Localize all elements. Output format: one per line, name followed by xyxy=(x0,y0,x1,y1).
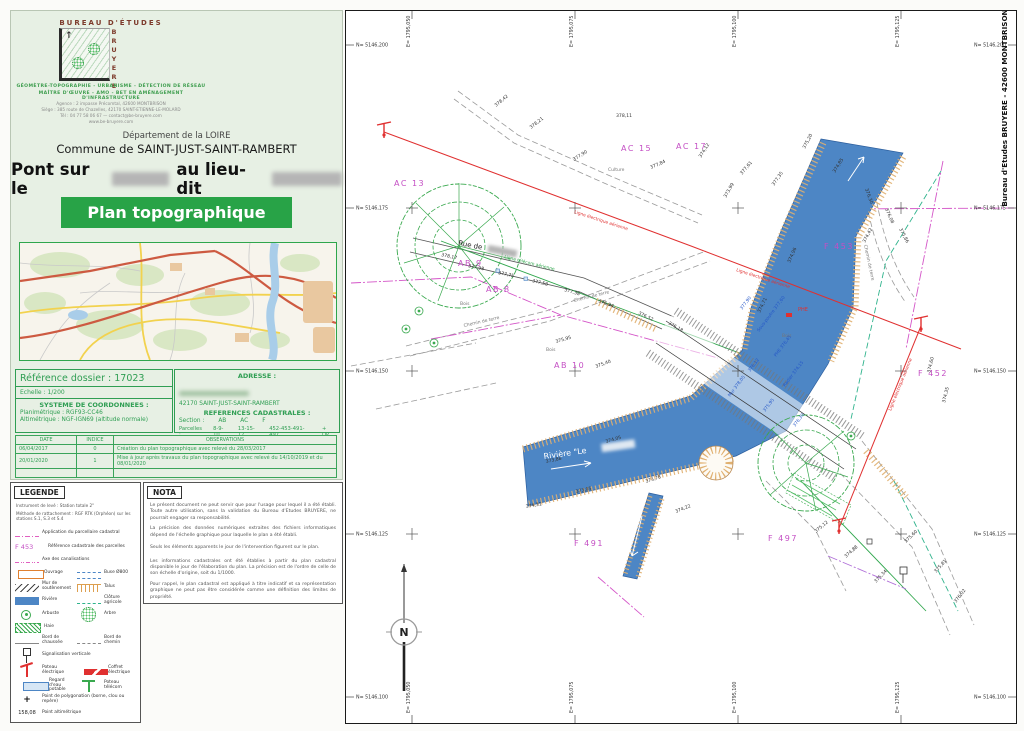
coffret-icon xyxy=(84,669,108,675)
dossier-box: Référence dossier : 17023 Echelle : 1/20… xyxy=(15,369,173,433)
table-cell xyxy=(77,469,114,478)
parcel-label: AB 8 xyxy=(486,285,511,294)
revisions-col-header: INDICE xyxy=(77,436,114,445)
coord-system-title: SYSTEME DE COORDONNEES : xyxy=(16,399,172,409)
legend-row: 158,08Point altimétrique xyxy=(15,707,138,720)
elevation-label: 374,35 xyxy=(941,386,951,403)
blurred-text xyxy=(179,391,249,396)
north-letter: N xyxy=(399,626,408,639)
cloture-icon xyxy=(77,603,101,604)
legend-item: Haie xyxy=(15,622,138,633)
elevation-label: 374,88 xyxy=(843,544,859,559)
legend-row: Bord de chausséeBord de chemin xyxy=(15,634,138,647)
legend-item: Coffret électrique xyxy=(77,666,138,676)
elevation-label: 375,20 xyxy=(801,133,814,150)
map-text: Ligne télécom aérienne xyxy=(504,253,556,272)
elevation-label: 375,95 xyxy=(555,335,572,345)
map-text: Bois xyxy=(460,301,470,307)
elevation-label: 376,02 xyxy=(953,588,968,604)
legend-item-label: Bord de chaussée xyxy=(42,636,77,646)
legend-row: Mur de soutènementTalus xyxy=(15,581,138,594)
project-title-middle: au lieu-dit xyxy=(176,160,264,198)
revisions-header: DATEINDICEOBSERVATIONS xyxy=(16,436,337,445)
planimetric-ref: Planimétrique : RGF93-CC46 xyxy=(16,409,172,416)
legend-item: Clôture agricole xyxy=(77,596,138,606)
haie-icon xyxy=(15,623,41,633)
department-label: Département de la LOIRE xyxy=(11,131,342,141)
legend-item-label: Arbuste xyxy=(42,612,59,617)
legend-row: ArbusteArbre xyxy=(15,607,138,620)
elevation-label: 377,35 xyxy=(771,170,785,187)
elevation-label: 378,11 xyxy=(616,113,632,119)
legend-item: Ouvrage xyxy=(15,568,77,579)
nota-paragraph: La précision des données numériques extr… xyxy=(150,526,336,539)
northing-label: N= 5146,175 xyxy=(356,206,388,212)
project-title: Pont sur le au lieu-dit xyxy=(11,160,342,198)
parcel-label: AC 15 xyxy=(621,144,652,153)
nota-paragraph: Les informations cadastrales ont été éta… xyxy=(150,559,336,578)
elevation-label: 377,61 xyxy=(739,160,754,176)
legend-item-label: Point altimétrique xyxy=(42,711,81,716)
company-logo: ↑ xyxy=(59,28,110,81)
tagline-2: MAÎTRE D'ŒUVRE - AMO - BET EN AMÉNAGEMEN… xyxy=(11,91,211,101)
easting-label: E= 1795,050 xyxy=(406,682,412,713)
legend-row: Poteau électriqueCoffret électrique xyxy=(15,663,138,679)
address-title: ADRESSE : xyxy=(175,370,339,380)
bordchaussee-icon xyxy=(15,643,39,644)
legend-item-label: Ouvrage xyxy=(44,571,63,576)
legend-panel: LEGENDE Instrument de levé : Station tot… xyxy=(10,482,141,723)
nota-paragraphs: Le présent document ne peut servir que p… xyxy=(150,503,336,605)
legend-items: Application du parcellaire cadastralF 45… xyxy=(15,527,138,720)
altimetric-ref: Altimétrique : NGF-IGN69 (altitude norma… xyxy=(16,416,172,423)
legend-item-label: Regard d'eau potable xyxy=(49,679,77,694)
northing-label: N= 5146,150 xyxy=(356,369,388,375)
parcelref-icon: F 453 xyxy=(15,542,45,553)
elevation-label: 376,08 xyxy=(883,207,895,224)
blurred-text xyxy=(272,172,343,186)
elevation-label: 373,99 xyxy=(723,182,736,199)
brand-vertical-label: BRUYERE xyxy=(110,28,118,82)
buse-icon xyxy=(77,572,101,579)
ouvrage-icon xyxy=(18,570,44,579)
plan-svg: E= 1795,050E= 1795,050E= 1795,075E= 1795… xyxy=(346,11,1016,723)
company-top-label: Bureau d'Études xyxy=(11,19,211,27)
legend-row: RivièreClôture agricole xyxy=(15,594,138,607)
elevation-label: 377,38 xyxy=(563,287,580,297)
poteautel-icon xyxy=(77,679,101,694)
address-line-4: www.be-bruyere.com xyxy=(11,119,211,125)
axe-icon xyxy=(15,562,39,563)
revisions-body: 06/04/20170Création du plan topographiqu… xyxy=(16,445,337,478)
easting-label: E= 1795,075 xyxy=(569,682,575,713)
commune-label: Commune de SAINT-JUST-SAINT-RAMBERT xyxy=(11,142,342,156)
elevation-label: 375,12 xyxy=(813,520,829,535)
table-cell: Mise à jour après travaux du plan topogr… xyxy=(114,454,337,469)
address-city: 42170 SAINT-JUST-SAINT-RAMBERT xyxy=(175,400,339,407)
legend-item-label: Arbre xyxy=(104,612,116,617)
blurred-text xyxy=(487,245,517,258)
legend-row: OuvrageBuse Ø800 xyxy=(15,567,138,580)
map-river xyxy=(270,243,275,360)
legend-item-label: Référence cadastrale des parcelles xyxy=(48,545,125,550)
map-lake xyxy=(68,310,88,320)
easting-label: E= 1795,075 xyxy=(569,16,575,47)
elevation-label: 375,40 xyxy=(595,359,612,370)
address-line-3: Tél : 04 77 58 06 67 — contact@be-bruyer… xyxy=(11,113,211,119)
northing-label: N= 5146,125 xyxy=(974,532,1006,538)
parcel-label: AC 13 xyxy=(394,179,425,188)
elevation-label: 376,94 xyxy=(597,298,614,309)
northing-label: N= 5146,100 xyxy=(356,695,388,701)
cadastral-lines xyxy=(351,161,1014,617)
tree-icon xyxy=(72,57,84,69)
plan-frame: E= 1795,050E= 1795,050E= 1795,075E= 1795… xyxy=(345,10,1017,724)
elevation-label: 377,58 xyxy=(532,278,549,288)
elevation-label: 377,90 xyxy=(572,149,589,163)
table-cell: 06/04/2017 xyxy=(16,445,77,454)
map-text: Chemin de terre xyxy=(862,244,876,281)
elevation-label: 375,86 xyxy=(897,227,910,244)
legend-item-label: Mur de soutènement xyxy=(42,582,77,592)
location-map-svg xyxy=(20,243,336,360)
legend-item: Buse Ø800 xyxy=(77,569,138,579)
blurred-text xyxy=(112,172,170,186)
legend-title: LEGENDE xyxy=(14,486,65,499)
location-map xyxy=(19,242,337,361)
easting-label: E= 1795,050 xyxy=(406,16,412,47)
elevation-label: 374,22 xyxy=(675,503,692,515)
legend-row: Application du parcellaire cadastral xyxy=(15,527,138,540)
legend-item-label: Buse Ø800 xyxy=(104,571,128,576)
plan-sheet: { "colors":{"banner_green":"#28a347","ta… xyxy=(0,0,1024,731)
legend-method: Méthode de rattachement : RGF RTK (Orphé… xyxy=(16,511,136,522)
legend-item: Bord de chemin xyxy=(77,636,138,646)
legend-row: Axe des canalisations xyxy=(15,554,138,567)
parcel-label: F 453 xyxy=(824,242,854,251)
parcel-label: AB 10 xyxy=(554,361,585,370)
legend-item: 158,08Point altimétrique xyxy=(15,708,138,719)
poteauelec-icon xyxy=(15,663,39,679)
table-cell: Création du plan topographique avec rele… xyxy=(114,445,337,454)
legend-item-label: Talus xyxy=(104,585,115,590)
table-cell: 0 xyxy=(77,445,114,454)
easting-label: E= 1795,125 xyxy=(895,682,901,713)
polygo-icon: + xyxy=(15,695,39,706)
northing-label: N= 5146,100 xyxy=(974,695,1006,701)
legend-item: F 453Référence cadastrale des parcelles xyxy=(15,542,138,553)
section-value: AB xyxy=(218,418,226,424)
map-text: Ligne électrique aérienne xyxy=(886,357,914,412)
map-text: Bois xyxy=(546,347,556,353)
legend-item-label: Haie xyxy=(44,625,54,630)
tagline-1: GÉOMÈTRE-TOPOGRAPHIE - URBANISME - DÉTEC… xyxy=(11,84,211,89)
elevation-label: 375,81 xyxy=(933,558,948,574)
revisions-col-header: OBSERVATIONS xyxy=(114,436,337,445)
regard-icon xyxy=(23,682,49,691)
legend-item-label: Coffret électrique xyxy=(108,666,138,676)
revisions-col-header: DATE xyxy=(16,436,77,445)
table-cell xyxy=(114,469,337,478)
nota-panel: NOTA Le présent document ne peut servir … xyxy=(143,482,343,604)
title-block-card: Bureau d'Études ↑ BRUYERE GÉOMÈTRE-TOPOG… xyxy=(10,10,343,480)
riviere-icon xyxy=(15,597,39,605)
parcel-label: F 491 xyxy=(574,539,604,548)
legend-item-label: Signalisation verticale xyxy=(42,653,91,658)
project-title-prefix: Pont sur le xyxy=(11,160,105,198)
legend-item: Axe des canalisations xyxy=(15,557,138,563)
section-value: AC xyxy=(240,418,248,424)
nota-title: NOTA xyxy=(147,486,182,499)
legend-item: Arbre xyxy=(77,609,138,620)
legend-row: F 453Référence cadastrale des parcelles xyxy=(15,540,138,553)
legend-item: Signalisation verticale xyxy=(15,648,138,663)
elevation-label: 374,42 xyxy=(861,227,874,244)
elevation-label: 377,75 xyxy=(498,270,515,279)
legend-item-label: Poteau électrique xyxy=(42,666,77,676)
legend-item: Rivière xyxy=(15,596,77,605)
legend-item-label: Rivière xyxy=(42,598,57,603)
altim-icon: 158,08 xyxy=(15,708,39,719)
legend-item-label: Poteau télécom xyxy=(104,681,138,691)
talus-icon xyxy=(77,584,101,592)
elevation-label: 378,21 xyxy=(529,116,545,131)
cadastral-title: REFERENCES CADASTRALES : xyxy=(175,407,339,417)
legend-item: Regard d'eau potable xyxy=(15,679,77,694)
nota-paragraph: Seuls les éléments apparents le jour de … xyxy=(150,545,336,551)
legend-item-label: Bord de chemin xyxy=(104,636,138,646)
mur-icon xyxy=(15,584,39,592)
nota-paragraph: Le présent document ne peut servir que p… xyxy=(150,503,336,522)
scale-label: Echelle : 1/200 xyxy=(16,387,172,399)
legend-item: +Point de polygonation (borne, clou ou r… xyxy=(15,695,138,706)
address-box: ADRESSE : 42170 SAINT-JUST-SAINT-RAMBERT… xyxy=(174,369,340,433)
cadastre-icon xyxy=(15,536,39,537)
coffret-icon xyxy=(786,313,792,317)
legend-item: Poteau électrique xyxy=(15,663,77,679)
elevation-label: 377,84 xyxy=(649,159,666,171)
bordchemin-icon xyxy=(77,643,101,644)
weir-circle xyxy=(699,446,733,480)
northing-label: N= 5146,200 xyxy=(356,43,388,49)
table-row: 20/01/20201Mise à jour après travaux du … xyxy=(16,454,337,469)
legend-item: Talus xyxy=(77,582,138,592)
legend-row: +Point de polygonation (borne, clou ou r… xyxy=(15,694,138,707)
signalisation-icon xyxy=(15,648,39,663)
legend-item: Mur de soutènement xyxy=(15,582,77,592)
frame-company-label: Bureau d'Etudes BRUYERE - 42600 MONTBRIS… xyxy=(1000,11,1009,207)
table-cell: 20/01/2020 xyxy=(16,454,77,469)
easting-label: E= 1795,100 xyxy=(732,16,738,47)
dossier-reference: Référence dossier : 17023 xyxy=(16,370,172,387)
easting-label: E= 1795,125 xyxy=(895,16,901,47)
table-cell: 1 xyxy=(77,454,114,469)
legend-instrument: Instrument de levé : Station totale 2" xyxy=(16,503,136,508)
address-line-2: Siège : 385 route de Chazelles, 42170 SA… xyxy=(11,107,211,113)
elevation-label: 375,60 xyxy=(903,529,919,545)
arbre-icon xyxy=(77,609,101,620)
legend-item-label: Axe des canalisations xyxy=(42,558,89,563)
legend-item-label: Point de polygonation (borne, clou ou re… xyxy=(42,695,138,705)
parcel-label: F 452 xyxy=(918,369,948,378)
legend-item: Arbuste xyxy=(15,609,77,620)
table-cell xyxy=(16,469,77,478)
nota-paragraph: Pour rappel, le plan cadastral est appli… xyxy=(150,582,336,601)
arbuste-icon xyxy=(15,609,39,620)
table-row xyxy=(16,469,337,478)
parcel-label: F 497 xyxy=(768,534,798,543)
legend-item: Poteau télécom xyxy=(77,679,138,694)
elevation-label: 378,42 xyxy=(493,94,509,109)
northing-label: N= 5146,125 xyxy=(356,532,388,538)
plan-type-banner: Plan topographique xyxy=(61,197,292,228)
section-label: Section : xyxy=(179,418,204,424)
revisions-table: DATEINDICEOBSERVATIONS 06/04/20170Créati… xyxy=(15,435,337,478)
legend-row: Signalisation verticale xyxy=(15,648,138,663)
easting-label: E= 1795,100 xyxy=(732,682,738,713)
table-row: 06/04/20170Création du plan topographiqu… xyxy=(16,445,337,454)
section-value: F xyxy=(262,418,265,424)
legend-row: Haie xyxy=(15,621,138,634)
northing-label: N= 5146,150 xyxy=(974,369,1006,375)
map-text: Culture xyxy=(608,167,625,173)
legend-item: Application du parcellaire cadastral xyxy=(15,531,138,537)
section-row: Section : ABACF xyxy=(175,417,339,424)
map-text: PHE xyxy=(798,307,808,313)
legend-item: Bord de chaussée xyxy=(15,636,77,646)
tree-icon xyxy=(88,43,100,55)
north-arrow-icon: ↑ xyxy=(65,31,73,41)
address-line-1: Agence : 2 impasse Précomtal, 42600 MONT… xyxy=(11,101,211,107)
legend-row: Regard d'eau potablePoteau télécom xyxy=(15,679,138,694)
legend-item-label: Clôture agricole xyxy=(104,596,138,606)
legend-item-label: Application du parcellaire cadastral xyxy=(42,531,120,536)
